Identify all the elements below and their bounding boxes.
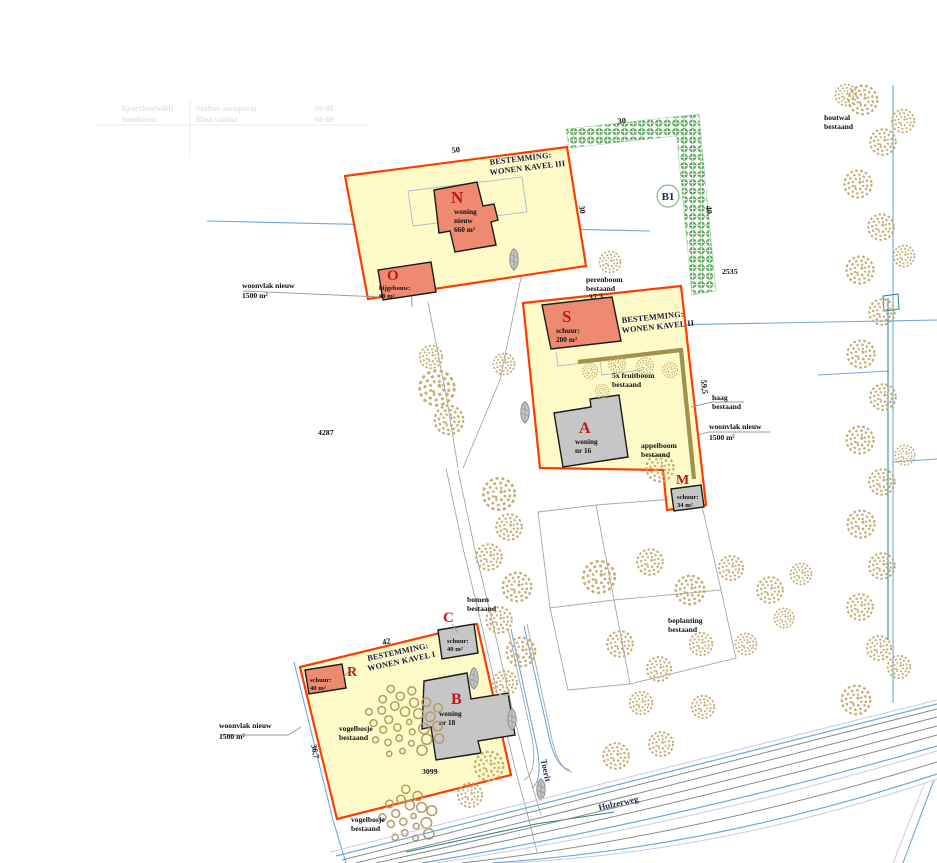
perenboom-line2: bestaand [586, 284, 616, 293]
vogelbosje-n-line2: bestaand [339, 733, 369, 742]
hedge-dim-right: 40 [704, 205, 714, 214]
tree-symbol [736, 634, 757, 655]
tree-symbol [649, 732, 673, 756]
tree-symbol [847, 427, 874, 454]
tree-symbol [420, 371, 455, 406]
building-s-barn: S schuur: 200 m² [542, 297, 621, 349]
appelboom-line2: bestaand [641, 450, 671, 459]
building-b-line1: woning [439, 709, 462, 718]
building-s-line1: schuur: [556, 326, 580, 335]
building-o-letter: O [387, 268, 399, 284]
building-n-letter: N [451, 188, 464, 207]
tree-symbol [676, 576, 705, 605]
tree-symbol [637, 549, 663, 575]
faint-size-2: 60-80 [315, 115, 334, 124]
tree-symbol [895, 445, 915, 465]
building-n-line3: 660 m² [454, 225, 476, 234]
vogelbosje-n-line1: vogelbosje [339, 724, 373, 733]
tree-symbol [888, 656, 911, 679]
bush-dot [405, 801, 414, 810]
site-plan-canvas: lijsterbes(wild) Sorbus aucuparia 60-80 … [0, 0, 937, 863]
tree-symbol [869, 469, 895, 495]
bush-dot [417, 803, 427, 813]
tree-symbol [845, 171, 872, 198]
building-s-letter: S [562, 307, 571, 326]
shrub-symbol [470, 668, 478, 689]
building-b-letter: B [451, 691, 462, 708]
b1-label: B1 [662, 191, 675, 203]
bomen-line2: bestaand [467, 604, 497, 613]
beplanting-line1: beplanting [668, 616, 703, 625]
bush-dot [411, 813, 416, 818]
building-c-line2: 40 m² [447, 646, 463, 653]
tree-symbol [848, 511, 875, 538]
bush-dot [400, 818, 407, 825]
building-o-line2: 80 m² [379, 293, 395, 300]
tree-symbol [503, 573, 532, 602]
building-r-line1: schuur: [310, 677, 332, 684]
parcel-number-4287: 4287 [318, 428, 334, 437]
tree-symbol [757, 577, 783, 603]
tree-symbol [647, 657, 671, 681]
tree-symbol [476, 544, 502, 570]
tree-symbol [848, 341, 875, 368]
building-a-line1: woning [575, 437, 598, 446]
houtwal-line1: houtwal [824, 113, 850, 122]
woonvlak-e-line1: woonvlak nieuw [709, 422, 762, 431]
building-s-shape [542, 297, 621, 349]
houtwal-line2: bestaand [824, 122, 854, 131]
bush-dot [392, 810, 400, 818]
parcel-number-3099: 3099 [422, 767, 438, 776]
hedge-band-top [566, 115, 693, 148]
hedge-band-right [675, 114, 716, 295]
tree-symbol [774, 608, 794, 628]
vogelbosje-s-line2: bestaand [351, 824, 381, 833]
building-a-line2: nr 16 [575, 446, 592, 455]
tree-symbol [847, 594, 873, 620]
parcel-number-2535: 2535 [722, 267, 738, 276]
road-label-hulzerweg: Hulzerweg [597, 794, 639, 813]
building-m-line2: 34 m² [677, 502, 693, 509]
tree-symbol [836, 85, 857, 106]
kavel-iii-dim-right: 30 [577, 205, 587, 214]
building-o-outbuilding: O bijgebouw: 80 m² [378, 262, 436, 300]
tree-symbol [869, 553, 895, 579]
vogelbosje-s-line1: vogelbosje [351, 815, 385, 824]
bomen-line1: bomen [467, 595, 490, 604]
kavel-ii-dim-right: 59,5 [699, 379, 709, 394]
tree-symbol [870, 384, 896, 410]
perenboom-line1: perenboom [586, 275, 623, 284]
shrub-symbol [508, 709, 516, 730]
building-c-barn: C schuur: 40 m² [438, 610, 478, 659]
fruitboom-line2: bestaand [612, 380, 642, 389]
kavel-i-dim-left: 36,7 [309, 743, 321, 759]
bush-dot [387, 821, 394, 828]
tree-symbol [842, 686, 871, 715]
appelboom-line1: appelboom [641, 441, 678, 450]
shrub-symbol [521, 402, 529, 423]
building-m-letter: M [676, 473, 689, 488]
faint-size-1: 60-80 [315, 104, 334, 113]
faint-species-latin-2: Rosa canina [196, 115, 238, 124]
bush-dot [413, 823, 419, 829]
tree-symbol [867, 636, 891, 660]
tree-symbol [607, 631, 633, 657]
faint-species-common-2: hondsroos [122, 115, 157, 124]
tree-symbol [483, 478, 515, 510]
building-n-line2: nieuw [454, 216, 473, 225]
bush-dot [427, 806, 437, 816]
tree-symbol [493, 671, 517, 695]
tree-symbol [869, 299, 895, 325]
hedge-b1: B1 30 40 2535 [566, 114, 738, 295]
building-o-line1: bijgebouw: [379, 285, 411, 292]
building-m-line1: schuur: [677, 494, 699, 501]
haag-line1: haag [712, 393, 728, 402]
building-n-line1: woning [454, 207, 477, 216]
kavel-iii-dim-top: 50 [451, 145, 460, 155]
tree-symbol [494, 354, 515, 375]
building-r-letter: R [347, 665, 358, 680]
tree-symbol [496, 514, 522, 540]
tree-symbol [600, 252, 621, 273]
building-r-line2: 40 m² [310, 685, 326, 692]
tree-symbol [692, 696, 715, 719]
tree-symbol [791, 564, 812, 585]
woonvlak-nw-line2: 1500 m² [242, 291, 268, 300]
hedge-dim-top: 30 [617, 116, 626, 126]
tree-symbol [603, 743, 629, 769]
faint-species-common-1: lijsterbes(wild) [122, 104, 173, 113]
shrub-symbol [510, 249, 518, 270]
kavel-i-dim-top: 42 [381, 636, 391, 647]
fruitboom-line1: 5x fruitboom [612, 371, 655, 380]
tree-symbol [719, 556, 743, 580]
building-s-line2: 200 m² [556, 335, 578, 344]
faint-plant-table: lijsterbes(wild) Sorbus aucuparia 60-80 … [96, 100, 370, 158]
tree-symbol [690, 633, 713, 656]
tree-symbol [630, 692, 653, 715]
beplanting-line2: bestaand [668, 625, 698, 634]
building-a-letter: A [579, 420, 591, 437]
woonvlak-sw-line1: woonvlak nieuw [219, 721, 272, 730]
woonvlak-nw-line1: woonvlak nieuw [242, 281, 295, 290]
haag-line2: bestaand [712, 402, 742, 411]
woonvlak-sw-line2: 1500 m² [219, 732, 245, 741]
tree-symbol [458, 783, 482, 807]
tree-symbol [847, 257, 874, 284]
tree-symbol [892, 110, 915, 133]
tree-symbol [849, 86, 878, 115]
building-c-letter: C [443, 610, 454, 626]
faint-species-latin-1: Sorbus aucuparia [196, 104, 257, 113]
tree-symbol [868, 214, 894, 240]
tree-symbol [894, 246, 915, 267]
woonvlak-e-line2: 1500 m² [709, 433, 735, 442]
building-c-line1: schuur: [447, 638, 469, 645]
tree-symbol [870, 129, 896, 155]
site-plan-svg: lijsterbes(wild) Sorbus aucuparia 60-80 … [0, 0, 937, 863]
